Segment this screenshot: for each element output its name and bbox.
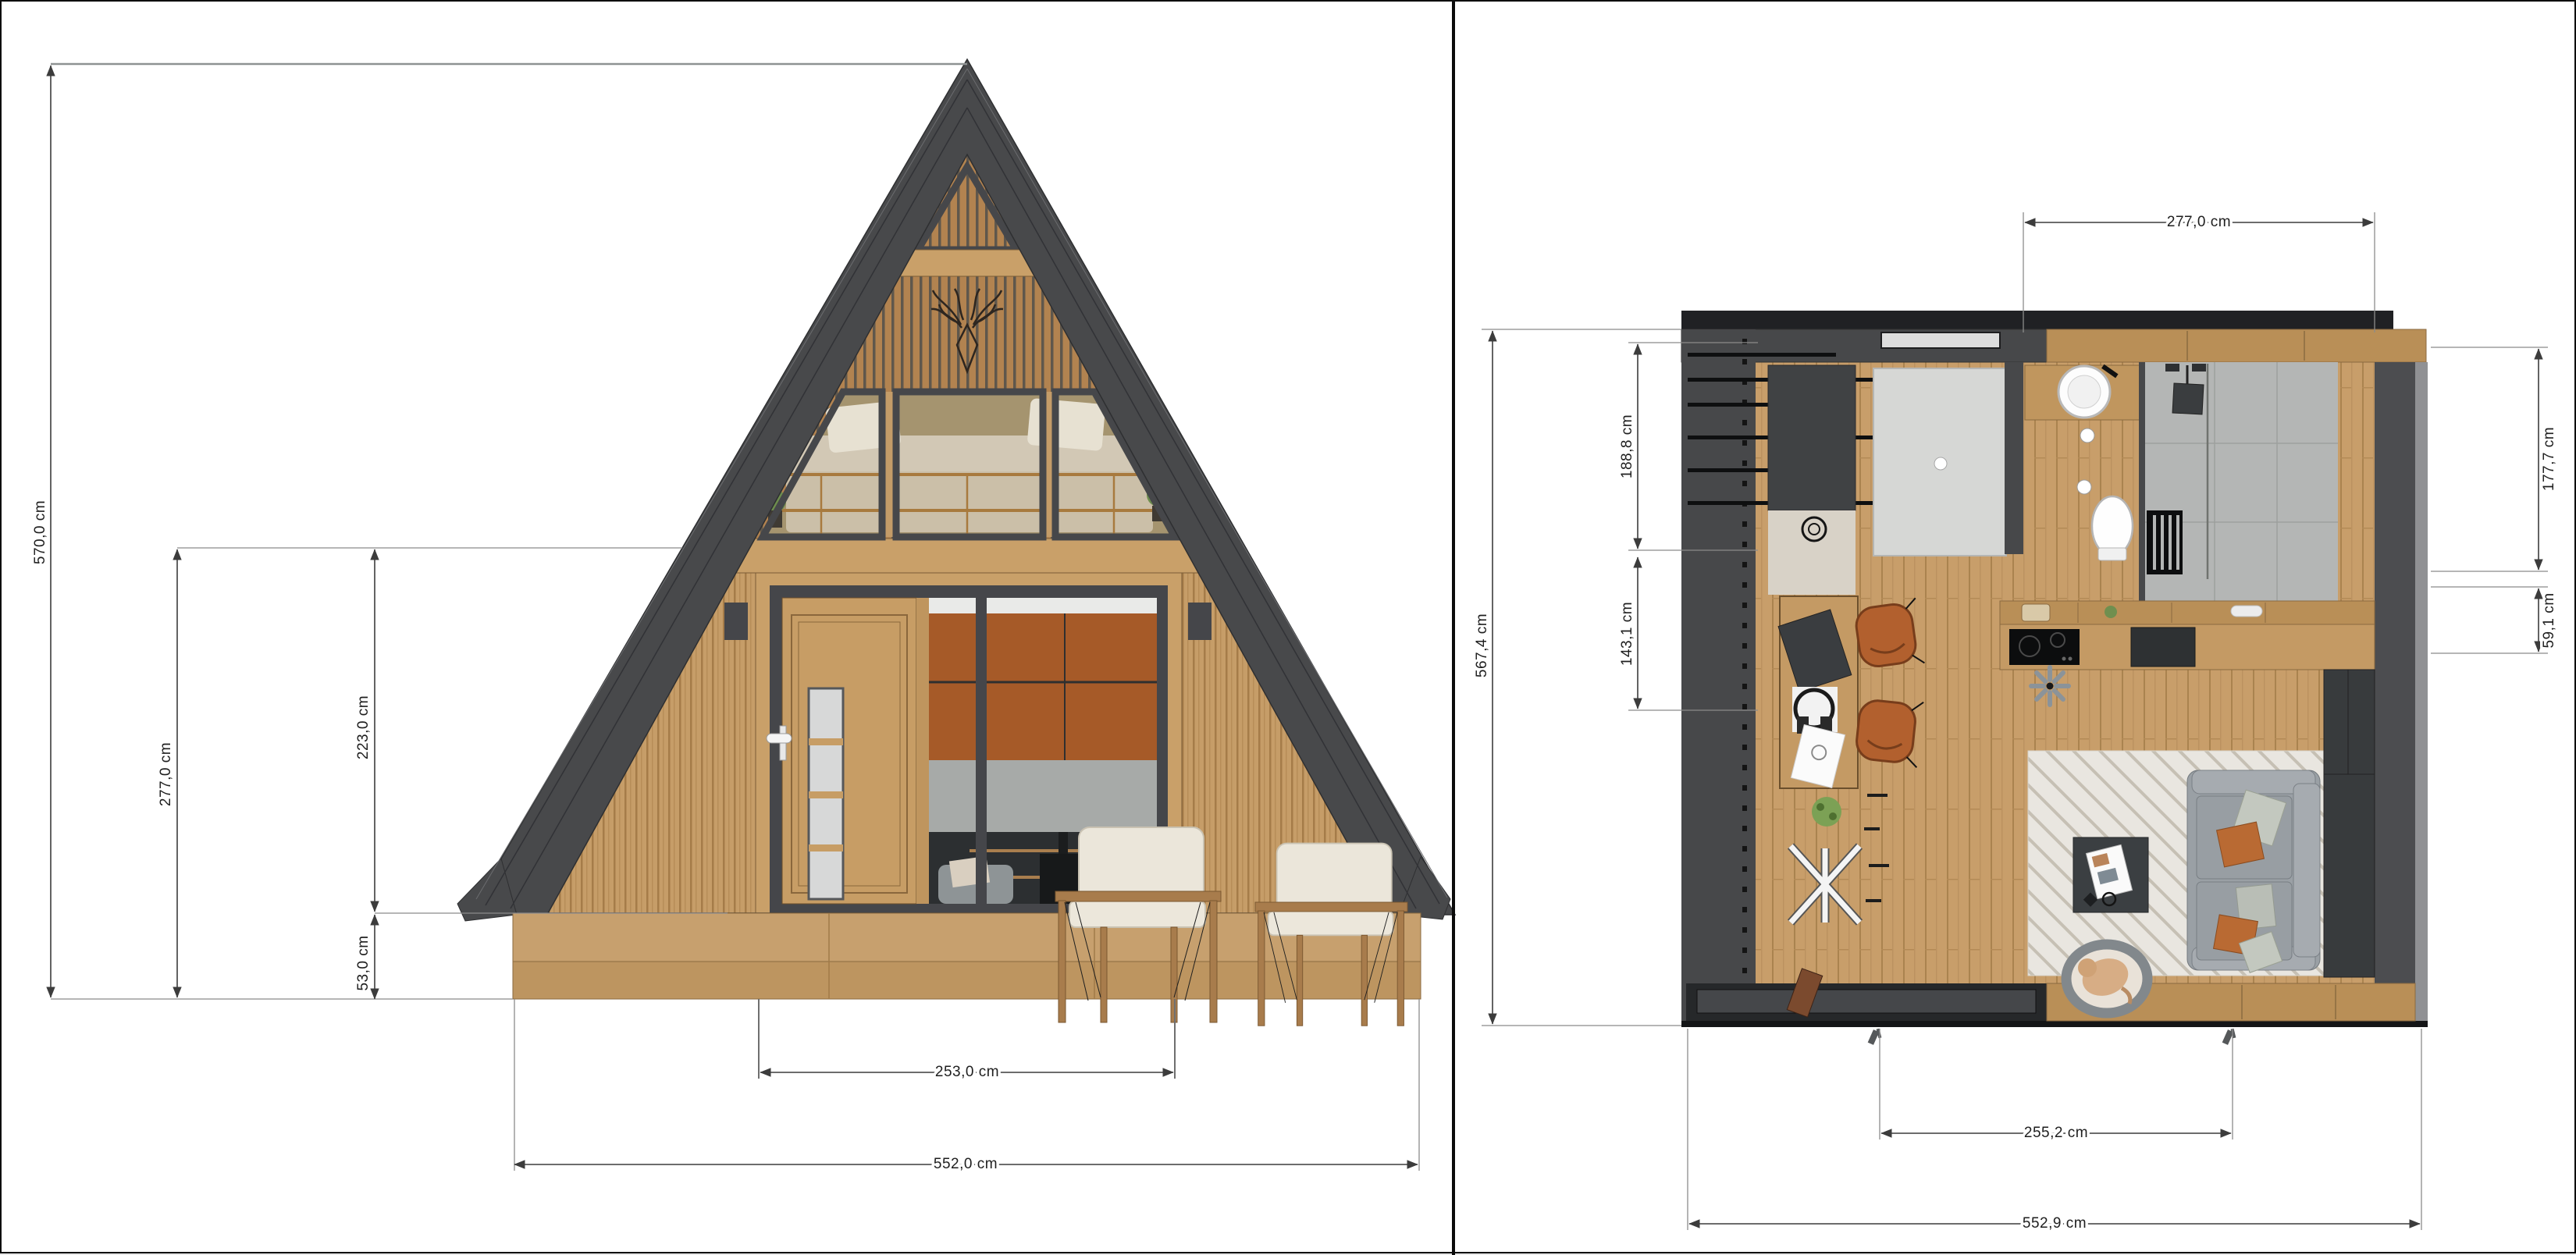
- dim-bathroom-depth: 177,7 cm: [2541, 427, 2557, 491]
- top-roof-edge: [1681, 311, 2393, 329]
- cutting-board: [2022, 604, 2050, 621]
- entry-mat: [1768, 510, 1856, 595]
- floor-plan-view: 277,0 cm 567,4 cm 188,8 cm 143,1 cm 177,…: [1474, 212, 2557, 1232]
- pillow: [2217, 822, 2265, 867]
- door-handle-icon: [767, 734, 792, 743]
- plant-icon: [1812, 797, 1841, 827]
- shower-head-icon: [2172, 383, 2204, 414]
- skylight: [1881, 332, 2000, 348]
- panel-divider: [1452, 2, 1455, 1255]
- media-unit: [2324, 670, 2375, 977]
- dim-terrace-door-width: 255,2 cm: [2024, 1125, 2088, 1141]
- dim-door-height: 223,0 cm: [355, 695, 372, 759]
- roof-tie: [724, 603, 748, 640]
- dim-total-depth: 567,4 cm: [1474, 613, 1490, 677]
- entry-door: [767, 598, 916, 904]
- top-wall-lintel: [2047, 329, 2426, 362]
- pillow: [1027, 398, 1106, 451]
- backsplash-band: [929, 760, 1157, 832]
- drawing: 570,0 cm 277,0 cm 223,0 cm 53,0 cm 253,0…: [2, 2, 2576, 1255]
- door-handle-icon: [2222, 1029, 2236, 1045]
- dim-counter-depth: 59,1 cm: [2541, 592, 2557, 648]
- orange-cabinets: [929, 613, 1157, 760]
- ceiling-light-icon: [1934, 457, 1947, 470]
- dim-base-width: 552,0 cm: [934, 1156, 998, 1172]
- kitchen-sink: [2131, 627, 2195, 667]
- closet: [1768, 365, 1856, 510]
- front-elevation-view: 570,0 cm 277,0 cm 223,0 cm 53,0 cm 253,0…: [32, 59, 1455, 1172]
- dim-loft-width: 277,0 cm: [2167, 214, 2231, 230]
- coffee-table: [2073, 837, 2148, 912]
- toilet-icon: [2092, 496, 2133, 556]
- herb-plant-icon: [2105, 606, 2117, 618]
- sofa: [2187, 770, 2320, 972]
- blueprint-canvas: 570,0 cm 277,0 cm 223,0 cm 53,0 cm 253,0…: [0, 0, 2576, 1253]
- dim-wall-height: 277,0 cm: [158, 742, 174, 806]
- dim-bedroom-zone: 188,8 cm: [1619, 414, 1635, 478]
- right-wall: [2375, 362, 2415, 1026]
- loft-floor-band: [540, 539, 1391, 573]
- dim-deck-height: 53,0 cm: [355, 935, 372, 990]
- sliding-door-panel: [1697, 990, 2036, 1013]
- ceiling-fan-icon: [2029, 665, 2071, 707]
- slider-stile: [976, 598, 987, 904]
- dim-total-width: 552,9 cm: [2023, 1215, 2087, 1232]
- dog-bed: [2066, 944, 2147, 1013]
- dim-total-height: 570,0 cm: [32, 500, 48, 564]
- bedroom-wall: [2005, 362, 2023, 554]
- kitchen: [2000, 601, 2375, 670]
- dim-door-width: 253,0 cm: [935, 1064, 999, 1080]
- left-wall: [1681, 329, 1756, 1027]
- roof-tie: [1188, 603, 1212, 640]
- dim-desk-zone: 143,1 cm: [1619, 602, 1635, 666]
- cabin-facade: [540, 150, 1391, 915]
